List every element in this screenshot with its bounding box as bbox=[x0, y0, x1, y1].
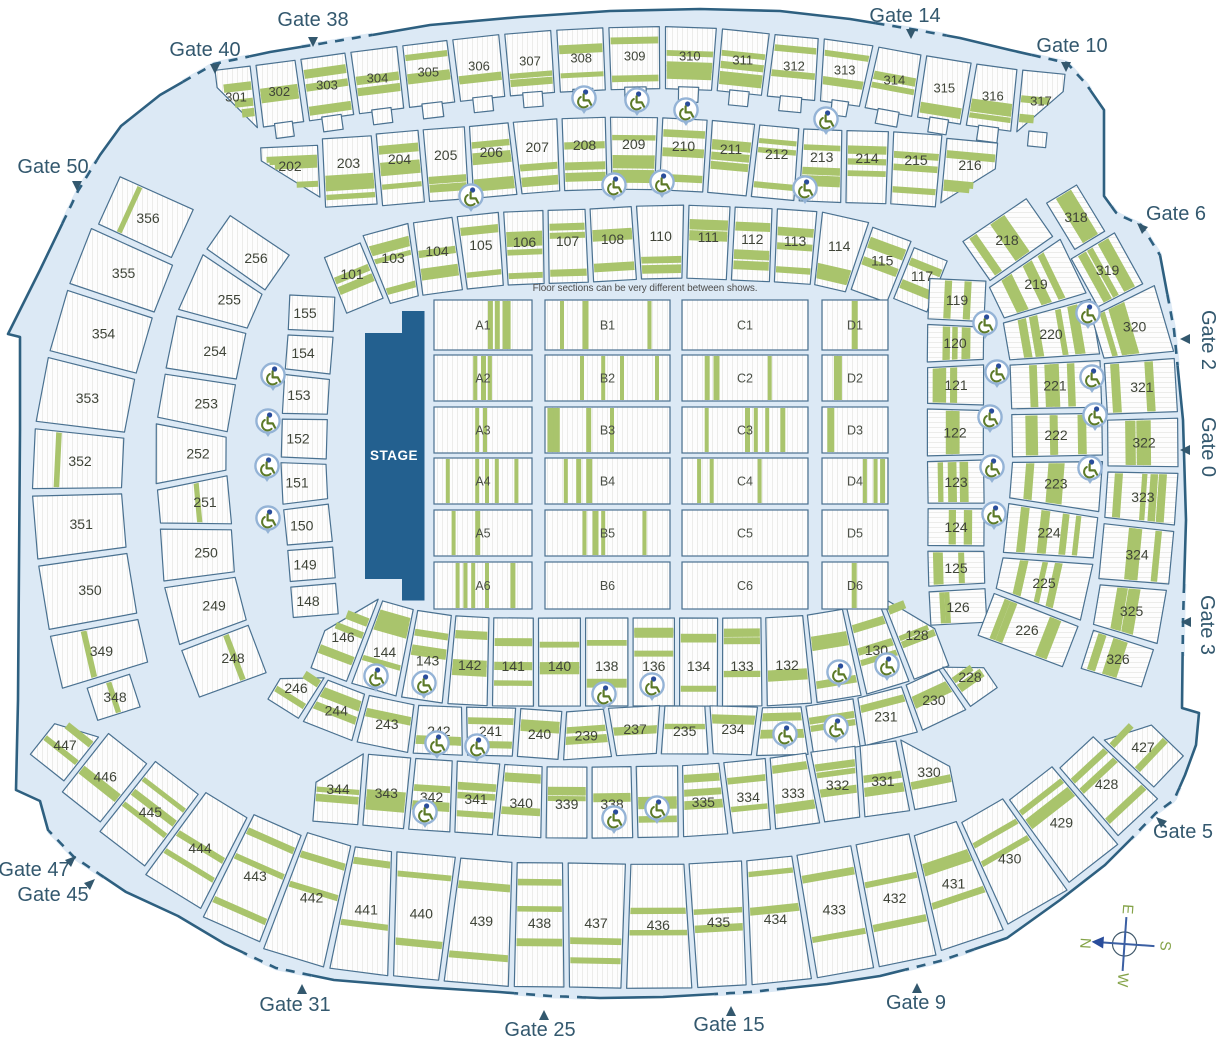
svg-text:255: 255 bbox=[218, 292, 242, 308]
svg-text:B6: B6 bbox=[600, 579, 615, 593]
svg-text:323: 323 bbox=[1131, 489, 1155, 505]
svg-text:246: 246 bbox=[284, 680, 308, 696]
svg-text:339: 339 bbox=[555, 796, 579, 812]
svg-text:240: 240 bbox=[528, 726, 552, 742]
svg-text:326: 326 bbox=[1106, 651, 1130, 667]
svg-text:146: 146 bbox=[331, 629, 355, 645]
svg-text:B2: B2 bbox=[600, 372, 615, 386]
svg-text:311: 311 bbox=[732, 53, 753, 68]
svg-text:319: 319 bbox=[1096, 262, 1120, 278]
svg-text:A6: A6 bbox=[475, 579, 490, 593]
svg-text:348: 348 bbox=[103, 689, 127, 705]
svg-text:444: 444 bbox=[188, 840, 212, 856]
svg-text:332: 332 bbox=[826, 777, 850, 793]
svg-text:250: 250 bbox=[194, 544, 218, 560]
svg-text:351: 351 bbox=[70, 516, 94, 532]
svg-text:Gate 50: Gate 50 bbox=[17, 156, 88, 178]
svg-text:Floor sections can be very dif: Floor sections can be very different bet… bbox=[533, 283, 758, 294]
svg-text:106: 106 bbox=[513, 234, 537, 250]
svg-text:340: 340 bbox=[510, 795, 534, 811]
svg-text:252: 252 bbox=[186, 446, 210, 462]
svg-text:133: 133 bbox=[730, 658, 754, 674]
svg-text:Gate 6: Gate 6 bbox=[1146, 203, 1206, 225]
svg-text:Gate 14: Gate 14 bbox=[869, 5, 940, 27]
svg-text:225: 225 bbox=[1032, 575, 1056, 591]
svg-text:440: 440 bbox=[410, 905, 434, 921]
svg-text:W: W bbox=[1113, 972, 1131, 988]
svg-text:445: 445 bbox=[139, 804, 163, 820]
svg-text:103: 103 bbox=[381, 250, 405, 266]
svg-text:128: 128 bbox=[905, 627, 929, 643]
svg-text:125: 125 bbox=[944, 560, 968, 576]
svg-text:302: 302 bbox=[268, 84, 290, 99]
svg-text:356: 356 bbox=[136, 210, 160, 226]
svg-text:334: 334 bbox=[737, 789, 761, 805]
svg-text:142: 142 bbox=[458, 657, 482, 673]
svg-text:D5: D5 bbox=[847, 527, 863, 541]
svg-text:212: 212 bbox=[765, 146, 789, 162]
svg-text:124: 124 bbox=[944, 519, 968, 535]
svg-text:122: 122 bbox=[943, 424, 967, 440]
svg-text:C2: C2 bbox=[737, 372, 753, 386]
svg-text:Gate 38: Gate 38 bbox=[277, 9, 348, 31]
svg-text:431: 431 bbox=[942, 876, 966, 892]
svg-text:B3: B3 bbox=[600, 424, 615, 438]
svg-text:A1: A1 bbox=[475, 319, 490, 333]
svg-text:Gate 0: Gate 0 bbox=[1197, 417, 1219, 477]
svg-text:343: 343 bbox=[375, 785, 399, 801]
svg-text:221: 221 bbox=[1043, 377, 1067, 393]
svg-text:C3: C3 bbox=[737, 424, 753, 438]
svg-text:136: 136 bbox=[642, 658, 666, 674]
svg-text:437: 437 bbox=[584, 915, 608, 931]
svg-text:349: 349 bbox=[90, 643, 114, 659]
svg-text:309: 309 bbox=[624, 49, 646, 64]
svg-text:251: 251 bbox=[193, 494, 217, 510]
svg-text:325: 325 bbox=[1120, 603, 1144, 619]
svg-text:256: 256 bbox=[244, 250, 268, 266]
svg-text:134: 134 bbox=[687, 658, 711, 674]
svg-text:Gate 9: Gate 9 bbox=[886, 992, 946, 1014]
svg-text:Gate 40: Gate 40 bbox=[169, 39, 240, 61]
svg-text:228: 228 bbox=[958, 669, 982, 685]
svg-text:427: 427 bbox=[1131, 739, 1155, 755]
svg-text:151: 151 bbox=[285, 475, 309, 491]
svg-text:224: 224 bbox=[1037, 525, 1061, 541]
svg-text:148: 148 bbox=[296, 593, 320, 609]
svg-text:226: 226 bbox=[1015, 622, 1039, 638]
svg-text:144: 144 bbox=[373, 644, 397, 660]
svg-text:Gate 47: Gate 47 bbox=[0, 859, 70, 881]
svg-text:239: 239 bbox=[575, 728, 599, 744]
svg-text:439: 439 bbox=[470, 913, 494, 929]
svg-text:307: 307 bbox=[519, 54, 541, 69]
svg-text:B1: B1 bbox=[600, 319, 615, 333]
svg-text:316: 316 bbox=[982, 89, 1004, 104]
svg-text:301: 301 bbox=[225, 90, 247, 105]
svg-text:108: 108 bbox=[601, 231, 625, 247]
svg-text:220: 220 bbox=[1039, 326, 1063, 342]
svg-text:208: 208 bbox=[573, 137, 597, 153]
svg-text:230: 230 bbox=[922, 692, 946, 708]
svg-text:D1: D1 bbox=[847, 319, 863, 333]
svg-text:355: 355 bbox=[112, 265, 136, 281]
svg-text:D2: D2 bbox=[847, 372, 863, 386]
svg-text:132: 132 bbox=[775, 657, 799, 673]
svg-text:Gate 31: Gate 31 bbox=[259, 994, 330, 1016]
svg-text:438: 438 bbox=[528, 915, 552, 931]
svg-text:314: 314 bbox=[884, 73, 906, 88]
svg-text:153: 153 bbox=[287, 387, 311, 403]
svg-text:104: 104 bbox=[425, 243, 449, 259]
svg-text:101: 101 bbox=[340, 266, 364, 282]
svg-text:C6: C6 bbox=[737, 579, 753, 593]
svg-text:304: 304 bbox=[367, 71, 389, 86]
svg-text:202: 202 bbox=[278, 158, 302, 174]
svg-text:435: 435 bbox=[707, 914, 731, 930]
svg-text:234: 234 bbox=[721, 721, 745, 737]
svg-text:E: E bbox=[1119, 904, 1137, 915]
svg-text:154: 154 bbox=[291, 345, 315, 361]
svg-text:428: 428 bbox=[1095, 776, 1119, 792]
svg-text:335: 335 bbox=[692, 794, 716, 810]
svg-text:333: 333 bbox=[781, 785, 805, 801]
svg-text:121: 121 bbox=[944, 377, 968, 393]
svg-text:436: 436 bbox=[647, 917, 671, 933]
svg-text:243: 243 bbox=[375, 716, 399, 732]
svg-text:105: 105 bbox=[469, 237, 493, 253]
svg-text:155: 155 bbox=[293, 305, 317, 321]
svg-text:254: 254 bbox=[203, 343, 227, 359]
svg-text:143: 143 bbox=[416, 653, 440, 669]
svg-text:204: 204 bbox=[388, 151, 412, 167]
svg-text:237: 237 bbox=[623, 721, 647, 737]
svg-text:447: 447 bbox=[53, 737, 77, 753]
svg-text:149: 149 bbox=[293, 557, 317, 573]
svg-text:210: 210 bbox=[672, 138, 696, 154]
svg-text:324: 324 bbox=[1125, 546, 1149, 562]
svg-text:321: 321 bbox=[1130, 379, 1154, 395]
svg-text:123: 123 bbox=[944, 474, 968, 490]
svg-text:330: 330 bbox=[917, 764, 941, 780]
svg-text:350: 350 bbox=[78, 582, 102, 598]
svg-text:114: 114 bbox=[828, 238, 851, 254]
svg-text:152: 152 bbox=[286, 430, 310, 446]
svg-text:308: 308 bbox=[570, 51, 592, 66]
svg-text:C1: C1 bbox=[737, 319, 753, 333]
svg-text:352: 352 bbox=[68, 453, 92, 469]
svg-text:216: 216 bbox=[958, 157, 982, 173]
svg-text:303: 303 bbox=[316, 78, 338, 93]
svg-text:344: 344 bbox=[326, 781, 350, 797]
svg-text:S: S bbox=[1156, 940, 1174, 951]
svg-text:305: 305 bbox=[417, 65, 439, 80]
svg-text:341: 341 bbox=[464, 791, 488, 807]
svg-text:446: 446 bbox=[94, 769, 118, 785]
svg-text:433: 433 bbox=[823, 902, 847, 918]
svg-text:115: 115 bbox=[871, 252, 894, 268]
svg-text:Gate 45: Gate 45 bbox=[17, 884, 88, 906]
svg-text:315: 315 bbox=[933, 80, 955, 95]
svg-text:Gate 2: Gate 2 bbox=[1197, 310, 1219, 370]
svg-text:312: 312 bbox=[783, 59, 805, 74]
svg-text:317: 317 bbox=[1030, 94, 1052, 109]
svg-text:306: 306 bbox=[468, 58, 490, 73]
svg-text:138: 138 bbox=[595, 658, 619, 674]
svg-text:A2: A2 bbox=[475, 372, 490, 386]
svg-text:110: 110 bbox=[650, 228, 673, 244]
svg-text:112: 112 bbox=[741, 231, 764, 247]
svg-text:120: 120 bbox=[943, 335, 967, 351]
svg-text:249: 249 bbox=[202, 597, 226, 613]
svg-text:218: 218 bbox=[995, 232, 1019, 248]
svg-text:213: 213 bbox=[810, 149, 834, 165]
svg-text:D3: D3 bbox=[847, 424, 863, 438]
svg-text:215: 215 bbox=[904, 152, 928, 168]
svg-text:B4: B4 bbox=[600, 475, 615, 489]
svg-text:434: 434 bbox=[764, 911, 788, 927]
svg-text:219: 219 bbox=[1024, 276, 1048, 292]
svg-text:Gate 3: Gate 3 bbox=[1196, 595, 1218, 655]
svg-text:107: 107 bbox=[556, 233, 580, 249]
svg-text:244: 244 bbox=[325, 703, 349, 719]
svg-text:D6: D6 bbox=[847, 579, 863, 593]
svg-text:A5: A5 bbox=[475, 527, 490, 541]
svg-text:253: 253 bbox=[195, 396, 219, 412]
svg-text:354: 354 bbox=[92, 326, 116, 342]
svg-text:Gate 10: Gate 10 bbox=[1036, 35, 1107, 57]
svg-text:N: N bbox=[1076, 937, 1094, 949]
svg-text:320: 320 bbox=[1123, 319, 1147, 335]
svg-text:322: 322 bbox=[1132, 435, 1156, 451]
svg-text:222: 222 bbox=[1044, 427, 1068, 443]
svg-text:C5: C5 bbox=[737, 527, 753, 541]
svg-text:223: 223 bbox=[1044, 475, 1068, 491]
svg-text:331: 331 bbox=[871, 773, 895, 789]
svg-text:Gate 15: Gate 15 bbox=[693, 1014, 764, 1036]
svg-text:Gate 25: Gate 25 bbox=[504, 1019, 575, 1041]
svg-text:126: 126 bbox=[946, 599, 970, 615]
svg-text:C4: C4 bbox=[737, 475, 753, 489]
svg-text:206: 206 bbox=[480, 144, 504, 160]
svg-text:141: 141 bbox=[502, 658, 526, 674]
svg-text:113: 113 bbox=[784, 233, 807, 249]
svg-text:310: 310 bbox=[679, 49, 701, 64]
svg-text:211: 211 bbox=[720, 141, 743, 157]
svg-text:214: 214 bbox=[855, 150, 879, 166]
svg-text:140: 140 bbox=[548, 658, 572, 674]
svg-text:A4: A4 bbox=[475, 475, 490, 489]
svg-text:A3: A3 bbox=[475, 424, 490, 438]
svg-text:111: 111 bbox=[698, 229, 719, 245]
svg-text:248: 248 bbox=[221, 650, 245, 666]
svg-text:313: 313 bbox=[834, 63, 856, 78]
svg-text:430: 430 bbox=[998, 851, 1022, 867]
svg-text:429: 429 bbox=[1050, 814, 1074, 830]
svg-text:150: 150 bbox=[290, 518, 314, 534]
svg-text:207: 207 bbox=[526, 139, 550, 155]
svg-text:432: 432 bbox=[883, 890, 907, 906]
svg-text:353: 353 bbox=[76, 390, 100, 406]
svg-text:B5: B5 bbox=[600, 527, 615, 541]
svg-text:205: 205 bbox=[434, 147, 458, 163]
svg-text:318: 318 bbox=[1064, 209, 1088, 225]
svg-text:STAGE: STAGE bbox=[370, 448, 418, 463]
svg-text:443: 443 bbox=[243, 868, 267, 884]
svg-text:441: 441 bbox=[355, 902, 379, 918]
svg-text:231: 231 bbox=[874, 709, 898, 725]
svg-text:209: 209 bbox=[622, 136, 646, 152]
svg-text:119: 119 bbox=[946, 292, 969, 308]
svg-text:203: 203 bbox=[337, 155, 361, 171]
svg-text:235: 235 bbox=[673, 723, 697, 739]
svg-text:442: 442 bbox=[300, 890, 324, 906]
svg-text:D4: D4 bbox=[847, 475, 863, 489]
